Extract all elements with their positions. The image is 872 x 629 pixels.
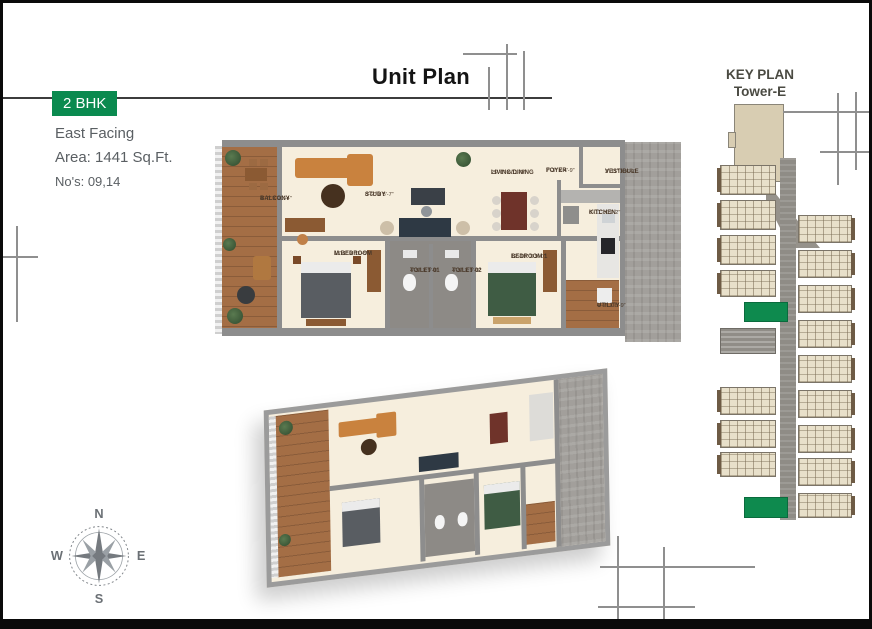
compass-south-label: S — [95, 591, 104, 606]
compass-north-label: N — [94, 506, 103, 521]
wall — [557, 180, 561, 238]
decor-line — [617, 536, 619, 627]
wash-basin — [403, 250, 417, 258]
plant — [225, 150, 241, 166]
decor-line — [488, 67, 490, 110]
facing-label: East Facing — [55, 125, 134, 142]
keyplan-unit — [798, 493, 852, 518]
wall — [561, 238, 566, 333]
dining-chair — [492, 196, 501, 205]
room-dims: 12'-10" X 9'-0" — [511, 254, 546, 261]
keyplan-unit — [798, 355, 852, 383]
study-chair — [421, 206, 432, 217]
unit-plan-sheet: Unit Plan 2 BHK East Facing Area: 1441 S… — [0, 0, 872, 629]
bed-pillows — [301, 262, 351, 273]
room-dims: 25'-0" X 11'-0" — [491, 170, 525, 177]
key-plan-title: KEY PLAN — [690, 66, 830, 83]
keyplan-unit — [720, 165, 776, 195]
keyplan-club-notch — [728, 132, 736, 148]
floor-plan-3d — [256, 372, 612, 582]
keyplan-unit — [798, 390, 852, 418]
media-console — [399, 218, 451, 237]
bed-bench — [306, 319, 346, 326]
keyplan-unit — [720, 387, 776, 415]
wall — [385, 238, 390, 333]
decor-line — [783, 111, 872, 113]
room-dims: 4'-5" X 9'-0" — [410, 268, 439, 275]
media-console — [419, 452, 459, 472]
page-title: Unit Plan — [372, 64, 470, 90]
compass-west-label: W — [51, 548, 63, 563]
toilet-wc — [403, 274, 416, 291]
coffee-table — [321, 184, 345, 208]
keyplan-unit — [720, 420, 776, 448]
room-dims: 8'-2" X 8'-7" — [365, 192, 394, 199]
bed-bench — [493, 317, 531, 324]
dining-chair — [492, 222, 501, 231]
decor-line — [837, 93, 839, 185]
keyplan-unit — [720, 452, 776, 477]
keyplan-corridor — [780, 158, 796, 520]
wash-basin — [445, 250, 459, 258]
area-label: Area: 1441 Sq.Ft. — [55, 149, 173, 166]
plant — [223, 238, 236, 251]
wall — [471, 238, 476, 333]
compass-east-label: E — [137, 548, 146, 563]
plant — [456, 152, 471, 167]
key-plan-map — [718, 98, 860, 538]
wall — [429, 244, 433, 333]
room-dims: 4'-7" X 21'-4" — [260, 196, 292, 203]
unit-type-badge: 2 BHK — [52, 91, 117, 116]
wall — [520, 464, 526, 549]
common-corridor — [559, 374, 606, 547]
decor-line — [598, 606, 695, 608]
decor-line — [855, 92, 857, 170]
balcony-chair — [249, 159, 257, 166]
keyplan-unit — [798, 320, 852, 348]
compass-icon: N S E W — [50, 502, 148, 610]
keyplan-unit-highlighted — [744, 497, 788, 518]
room-dims: 7'-3" X 4'-9" — [546, 168, 575, 175]
plant — [227, 308, 243, 324]
keyplan-unit — [720, 270, 776, 297]
wall — [281, 236, 621, 241]
washing-machine — [597, 288, 612, 303]
keyplan-unit — [798, 250, 852, 278]
keyplan-unit — [798, 458, 852, 486]
study-desk — [411, 188, 445, 205]
decor-line — [820, 151, 872, 153]
ceiling-fan — [380, 221, 394, 235]
toilet-wc — [445, 274, 458, 291]
keyplan-unit — [720, 235, 776, 265]
keyplan-stairs — [720, 328, 776, 354]
coffee-table — [361, 438, 377, 456]
dining-table — [490, 412, 508, 444]
desk-chair — [297, 234, 308, 245]
wall — [579, 184, 621, 188]
room-dims: 13'-1" X 11'-5" — [334, 251, 368, 258]
kitchen-counter — [561, 190, 620, 203]
wall — [474, 470, 480, 555]
bean-bag — [237, 286, 255, 304]
dining-table — [501, 192, 527, 230]
decor-line — [663, 547, 665, 627]
balcony-chair — [260, 159, 268, 166]
decor-line — [463, 53, 517, 55]
bed-pillows — [488, 262, 536, 273]
lounge-chair — [253, 256, 271, 280]
balcony-chair — [249, 183, 257, 190]
unit-numbers-label: No's: 09,14 — [55, 174, 120, 189]
key-plan-title-block: KEY PLAN Tower-E — [690, 66, 830, 100]
balcony-railing — [215, 146, 222, 334]
keyplan-unit — [798, 285, 852, 313]
decor-line — [600, 566, 755, 568]
dining-chair — [492, 209, 501, 218]
balcony-table — [245, 168, 267, 181]
stove — [601, 238, 615, 254]
room-dims: 6'-11" X 9'-2" — [589, 210, 620, 217]
room-dims: 3'-11" X 4'-9" — [605, 169, 636, 176]
keyplan-unit — [798, 425, 852, 453]
decor-line — [523, 51, 525, 110]
dining-chair — [530, 222, 539, 231]
desk — [285, 218, 325, 232]
floor-plan-3d-body — [264, 368, 611, 587]
kitchen-counter — [529, 392, 554, 441]
side-table — [293, 256, 301, 264]
ceiling-fan — [456, 221, 470, 235]
sofa-chaise — [347, 154, 373, 186]
keyplan-unit-highlighted — [744, 302, 788, 322]
keyplan-unit — [720, 200, 776, 230]
balcony-chair — [260, 183, 268, 190]
fridge — [563, 206, 579, 224]
keyplan-unit — [798, 215, 852, 243]
sofa-chaise — [376, 411, 396, 438]
compass-rose: N S E W — [50, 502, 148, 610]
wall — [579, 146, 583, 188]
room-dims: 4'-7" X 8'-9" — [597, 303, 626, 310]
room-dims: 4'-5" X 9'-0" — [452, 268, 481, 275]
decor-line — [0, 256, 38, 258]
floor-plan-2d: BALCONY4'-7" X 21'-4" STUDY8'-2" X 8'-7"… — [213, 138, 681, 348]
decor-line — [16, 226, 18, 322]
utility-floor — [525, 501, 555, 545]
wall — [222, 140, 625, 147]
dining-chair — [530, 209, 539, 218]
dining-chair — [530, 196, 539, 205]
